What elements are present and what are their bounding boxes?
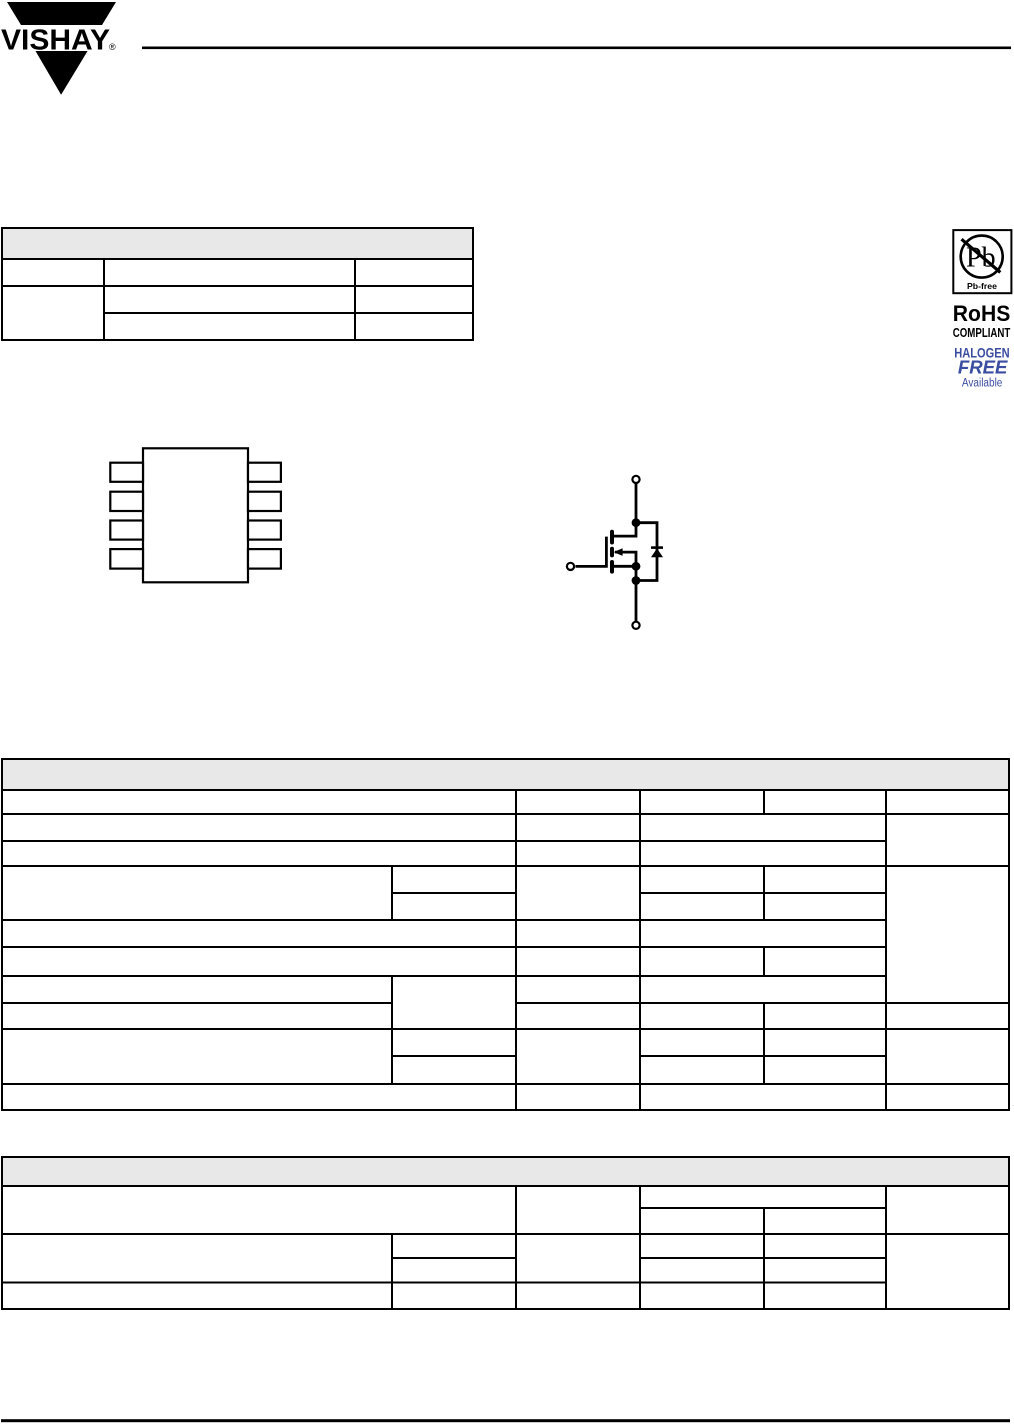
svg-text:Available: Available <box>962 377 1003 389</box>
svg-text:®: ® <box>109 42 116 52</box>
svg-text:Pb-free: Pb-free <box>967 281 997 291</box>
svg-text:FREE: FREE <box>958 358 1009 378</box>
svg-text:RoHS: RoHS <box>953 301 1011 326</box>
svg-text:COMPLIANT: COMPLIANT <box>953 325 1011 340</box>
